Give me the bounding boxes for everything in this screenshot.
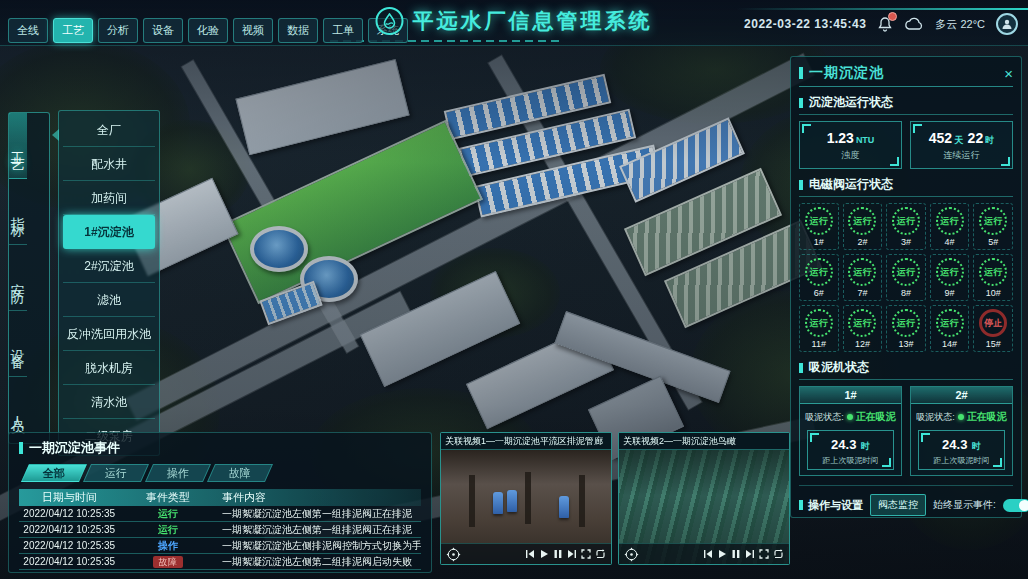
event-row[interactable]: 2022/04/12 10:25:35 故障 一期絮凝沉淀池左侧第二组排泥阀启动… — [19, 554, 421, 570]
loop-icon[interactable] — [773, 549, 784, 559]
valve-status-label: 运行 — [984, 266, 1002, 279]
valve-15[interactable]: 停止15# — [973, 305, 1013, 352]
nav-huayan[interactable]: 化验 — [188, 18, 228, 43]
valve-id: 2# — [857, 237, 867, 247]
section-run-status: 沉淀池运行状态 1.23NTU 浊度 452天 22时 连续运行 — [799, 94, 1013, 169]
show-events-label: 始终显示事件: — [933, 498, 996, 512]
video-2-title: 关联视频2—一期沉淀池鸟瞰 — [619, 433, 789, 450]
event-row[interactable]: 2022/04/12 10:25:35 运行 一期絮凝沉淀池左侧第一组排泥阀正在… — [19, 522, 421, 538]
valve-grid: 运行1# 运行2# 运行3# 运行4# 运行5# 运行6# 运行7# 运行8# … — [799, 203, 1013, 352]
valve-9[interactable]: 运行9# — [930, 254, 970, 301]
valve-14[interactable]: 运行14# — [930, 305, 970, 352]
status-dot-icon — [958, 414, 964, 420]
valve-run-indicator: 运行 — [936, 309, 964, 337]
col-type: 事件类型 — [120, 490, 216, 505]
datetime: 2022-03-22 13:45:43 — [744, 17, 866, 31]
nav-gongdan[interactable]: 工单 — [323, 18, 363, 43]
mud-time-box: 24.3 时 距上次吸泥时间 — [807, 430, 894, 470]
video-scene-detail — [579, 475, 585, 527]
col-datetime: 日期与时间 — [19, 490, 120, 505]
play-icon[interactable] — [539, 549, 549, 559]
turbidity-card: 1.23NTU 浊度 — [799, 121, 902, 169]
pause-icon[interactable] — [553, 549, 563, 559]
valve-status-label: 停止 — [984, 317, 1002, 330]
valve-run-indicator: 运行 — [979, 207, 1007, 235]
side-tab-gongyi[interactable]: 工艺 — [9, 113, 27, 179]
valve-id: 5# — [988, 237, 998, 247]
valve-id: 9# — [945, 288, 955, 298]
event-type: 运行 — [158, 508, 178, 519]
operations-title: 操作与设置 — [799, 498, 863, 513]
video-scene-detail — [493, 492, 503, 514]
detail-panel: 一期沉淀池 × 沉淀池运行状态 1.23NTU 浊度 452天 22时 连续运行 — [790, 56, 1022, 518]
valve-stop-indicator: 停止 — [979, 309, 1007, 337]
valve-status-label: 运行 — [810, 215, 828, 228]
tab-label: 操作 — [167, 466, 189, 481]
valve-run-indicator: 运行 — [848, 309, 876, 337]
valve-status-label: 运行 — [941, 266, 959, 279]
uptime-days-unit: 天 — [954, 135, 963, 145]
menu-item-jiayaojian[interactable]: 加药间 — [63, 181, 155, 215]
mud-machine-1-card: 1# 吸泥状态: 正在吸泥 24.3 时 距上次吸泥时间 — [799, 386, 902, 476]
uptime-label: 连续运行 — [944, 149, 980, 162]
valve-1[interactable]: 运行1# — [799, 203, 839, 250]
valve-id: 11# — [812, 339, 826, 349]
events-panel: 一期沉淀池事件 全部 运行 操作 故障 日期与时间 事件类型 事件内容 2022… — [8, 432, 432, 573]
side-tab-anfang[interactable]: 安防 — [9, 245, 27, 311]
menu-item-peishuijing[interactable]: 配水井 — [63, 147, 155, 181]
loop-icon[interactable] — [595, 549, 606, 559]
menu-item-fanchongxi[interactable]: 反冲洗回用水池 — [63, 317, 155, 351]
skip-forward-icon[interactable] — [745, 549, 755, 559]
events-tab-fault[interactable]: 故障 — [207, 464, 273, 482]
detail-panel-titlebar: 一期沉淀池 × — [799, 64, 1013, 87]
pause-icon[interactable] — [731, 549, 741, 559]
valve-id: 10# — [986, 288, 1001, 298]
section-title: 吸泥机状态 — [799, 359, 1013, 380]
valve-run-indicator: 运行 — [805, 207, 833, 235]
side-tab-shebei[interactable]: 设备 — [9, 311, 27, 377]
col-content: 事件内容 — [216, 490, 421, 505]
fullscreen-icon[interactable] — [759, 549, 769, 559]
show-events-toggle[interactable] — [1003, 499, 1028, 512]
valve-id: 1# — [814, 237, 824, 247]
video-scene-detail — [525, 472, 531, 524]
valve-run-indicator: 运行 — [892, 207, 920, 235]
valve-6[interactable]: 运行6# — [799, 254, 839, 301]
valve-status-label: 运行 — [853, 266, 871, 279]
ptz-pad-icon[interactable] — [624, 547, 639, 562]
nav-shuju[interactable]: 数据 — [278, 18, 318, 43]
skip-back-icon[interactable] — [525, 549, 535, 559]
valve-8[interactable]: 运行8# — [886, 254, 926, 301]
valve-4[interactable]: 运行4# — [930, 203, 970, 250]
event-content: 一期絮凝沉淀池左侧排泥阀控制方式切换为手动 — [216, 539, 421, 553]
valve-3[interactable]: 运行3# — [886, 203, 926, 250]
valve-11[interactable]: 运行11# — [799, 305, 839, 352]
uptime-hours: 22 — [968, 130, 984, 146]
status-dot-icon — [847, 414, 853, 420]
header-accent-line — [736, 8, 1028, 10]
mud-machine-id: 2# — [911, 387, 1012, 404]
play-icon[interactable] — [717, 549, 727, 559]
section-valves: 电磁阀运行状态 运行1# 运行2# 运行3# 运行4# 运行5# 运行6# 运行… — [799, 176, 1013, 352]
events-title: 一期沉淀池事件 — [19, 439, 421, 457]
valve-13[interactable]: 运行13# — [886, 305, 926, 352]
valve-5[interactable]: 运行5# — [973, 203, 1013, 250]
user-avatar[interactable] — [996, 13, 1018, 35]
detail-panel-title: 一期沉淀池 — [799, 64, 884, 82]
video-scene-detail — [507, 490, 517, 512]
valve-id: 6# — [814, 288, 824, 298]
section-operations: 操作与设置 阀态监控 始终显示事件: — [799, 485, 1013, 516]
event-content: 一期絮凝沉淀池左侧第一组排泥阀正在排泥 — [216, 523, 421, 537]
mud-time-unit: 时 — [972, 441, 981, 451]
nav-fenxi[interactable]: 分析 — [98, 18, 138, 43]
turbidity-unit: NTU — [856, 135, 875, 145]
valve-run-indicator: 运行 — [936, 207, 964, 235]
valve-run-indicator: 运行 — [892, 309, 920, 337]
menu-item-quanchang[interactable]: 全厂 — [63, 113, 155, 147]
event-row[interactable]: 2022/04/12 10:25:35 运行 一期絮凝沉淀池左侧第一组排泥阀正在… — [19, 506, 421, 522]
valve-run-indicator: 运行 — [892, 258, 920, 286]
valve-status-label: 运行 — [897, 317, 915, 330]
left-tab-bar: 工艺 指标 安防 设备 人员 — [8, 112, 50, 444]
valve-run-indicator: 运行 — [936, 258, 964, 286]
logo-icon — [376, 7, 404, 35]
valve-status-label: 运行 — [984, 215, 1002, 228]
valve-id: 14# — [942, 339, 957, 349]
valve-id: 12# — [855, 339, 870, 349]
menu-item-lvchi[interactable]: 滤池 — [63, 283, 155, 317]
menu-pointer-arrow — [52, 129, 59, 141]
weather-text: 多云 22°C — [935, 17, 985, 32]
menu-item-qingshuichi[interactable]: 清水池 — [63, 385, 155, 419]
valve-10[interactable]: 运行10# — [973, 254, 1013, 301]
tab-label: 运行 — [105, 466, 127, 481]
mud-machine-2-card: 2# 吸泥状态: 正在吸泥 24.3 时 距上次吸泥时间 — [910, 386, 1013, 476]
video-1-title: 关联视频1—一期沉淀池平流区排泥管廊 — [441, 433, 611, 450]
valve-run-indicator: 运行 — [805, 258, 833, 286]
valve-status-label: 运行 — [853, 215, 871, 228]
notification-badge — [888, 12, 897, 21]
event-type: 操作 — [158, 540, 178, 551]
valve-id: 8# — [901, 288, 911, 298]
valve-status-label: 运行 — [810, 317, 828, 330]
skip-forward-icon[interactable] — [567, 549, 577, 559]
event-type: 故障 — [153, 556, 183, 568]
brand: 平远水厂信息管理系统 — [376, 7, 653, 35]
valve-run-indicator: 运行 — [848, 207, 876, 235]
video-feed-2[interactable] — [619, 450, 789, 564]
event-time: 2022/04/12 10:25:35 — [19, 524, 120, 535]
valve-status-label: 运行 — [810, 266, 828, 279]
mud-time-box: 24.3 时 距上次吸泥时间 — [918, 430, 1005, 470]
mud-status-label: 吸泥状态: — [805, 411, 844, 424]
mud-status-value: 正在吸泥 — [856, 410, 896, 424]
nav-shebei[interactable]: 设备 — [143, 18, 183, 43]
uptime-card: 452天 22时 连续运行 — [910, 121, 1013, 169]
page-title: 平远水厂信息管理系统 — [413, 7, 653, 35]
video-feed-1[interactable] — [441, 450, 611, 564]
valve-monitor-button[interactable]: 阀态监控 — [870, 494, 926, 516]
mud-time-label: 距上次吸泥时间 — [810, 455, 891, 466]
header-right-cluster: 2022-03-22 13:45:43 多云 22°C — [744, 13, 1018, 35]
menu-item-tuoshuijifang[interactable]: 脱水机房 — [63, 351, 155, 385]
close-icon[interactable]: × — [1004, 66, 1013, 81]
valve-7[interactable]: 运行7# — [843, 254, 883, 301]
valve-status-label: 运行 — [941, 215, 959, 228]
valve-id: 13# — [898, 339, 913, 349]
fullscreen-icon[interactable] — [581, 549, 591, 559]
person-icon — [1001, 18, 1013, 30]
mud-time-unit: 时 — [861, 441, 870, 451]
events-tab-all[interactable]: 全部 — [21, 464, 87, 482]
event-content: 一期絮凝沉淀池左侧第一组排泥阀正在排泥 — [216, 507, 421, 521]
video-2-controls — [619, 543, 789, 564]
ptz-pad-icon[interactable] — [446, 547, 461, 562]
nav-shipin[interactable]: 视频 — [233, 18, 273, 43]
valve-status-label: 运行 — [897, 266, 915, 279]
video-panel-1: 关联视频1—一期沉淀池平流区排泥管廊 — [440, 432, 612, 565]
events-tab-run[interactable]: 运行 — [83, 464, 149, 482]
video-1-controls — [441, 543, 611, 564]
uptime-days: 452 — [929, 130, 952, 146]
section-title: 沉淀池运行状态 — [799, 94, 1013, 115]
video-scene-detail — [469, 475, 475, 527]
valve-id: 15# — [986, 339, 1001, 349]
valve-run-indicator: 运行 — [979, 258, 1007, 286]
side-tab-zhibiao[interactable]: 指标 — [9, 179, 27, 245]
event-content: 一期絮凝沉淀池左侧第二组排泥阀启动失败 — [216, 555, 421, 569]
valve-run-indicator: 运行 — [848, 258, 876, 286]
mud-time-label: 距上次吸泥时间 — [921, 455, 1002, 466]
event-time: 2022/04/12 10:25:35 — [19, 556, 120, 567]
section-title: 电磁阀运行状态 — [799, 176, 1013, 197]
skip-back-icon[interactable] — [703, 549, 713, 559]
mud-machine-id: 1# — [800, 387, 901, 404]
process-menu: 全厂 配水井 加药间 1#沉淀池 2#沉淀池 滤池 反冲洗回用水池 脱水机房 清… — [58, 110, 160, 456]
valve-run-indicator: 运行 — [805, 309, 833, 337]
valve-status-label: 运行 — [941, 317, 959, 330]
mud-time-value: 24.3 — [831, 437, 856, 452]
dashboard-root: 全线 工艺 分析 设备 化验 视频 数据 工单 系统 平远水厂信息管理系统 20… — [0, 0, 1028, 579]
event-row[interactable]: 2022/04/12 10:25:35 操作 一期絮凝沉淀池左侧排泥阀控制方式切… — [19, 538, 421, 554]
nav-quanxian[interactable]: 全线 — [8, 18, 48, 43]
video-panel-2: 关联视频2—一期沉淀池鸟瞰 — [618, 432, 790, 565]
cloud-icon — [904, 17, 924, 31]
tab-label: 全部 — [43, 466, 65, 481]
event-type: 运行 — [158, 524, 178, 535]
uptime-hours-unit: 时 — [985, 135, 994, 145]
event-time: 2022/04/12 10:25:35 — [19, 540, 120, 551]
events-table: 日期与时间 事件类型 事件内容 2022/04/12 10:25:35 运行 一… — [19, 489, 421, 570]
events-tabs: 全部 运行 操作 故障 — [25, 464, 421, 482]
main-nav: 全线 工艺 分析 设备 化验 视频 数据 工单 系统 — [8, 18, 408, 43]
menu-item-chendianchi-1[interactable]: 1#沉淀池 — [63, 215, 155, 249]
mud-status-value: 正在吸泥 — [967, 410, 1007, 424]
turbidity-label: 浊度 — [842, 149, 860, 162]
video-scene-detail — [559, 496, 569, 518]
valve-id: 3# — [901, 237, 911, 247]
events-table-header: 日期与时间 事件类型 事件内容 — [19, 489, 421, 506]
event-time: 2022/04/12 10:25:35 — [19, 508, 120, 519]
valve-status-label: 运行 — [897, 215, 915, 228]
top-header: 全线 工艺 分析 设备 化验 视频 数据 工单 系统 平远水厂信息管理系统 20… — [0, 0, 1028, 46]
mud-status-label: 吸泥状态: — [916, 411, 955, 424]
events-tab-operate[interactable]: 操作 — [145, 464, 211, 482]
valve-2[interactable]: 运行2# — [843, 203, 883, 250]
notifications-button[interactable] — [877, 16, 893, 32]
section-mud-machines: 吸泥机状态 1# 吸泥状态: 正在吸泥 24.3 时 距上次吸泥时间 2# — [799, 359, 1013, 476]
tab-label: 故障 — [229, 466, 251, 481]
valve-12[interactable]: 运行12# — [843, 305, 883, 352]
nav-gongyi[interactable]: 工艺 — [53, 18, 93, 43]
menu-item-chendianchi-2[interactable]: 2#沉淀池 — [63, 249, 155, 283]
valve-id: 7# — [857, 288, 867, 298]
mud-time-value: 24.3 — [942, 437, 967, 452]
valve-id: 4# — [945, 237, 955, 247]
turbidity-value: 1.23 — [827, 130, 854, 146]
valve-status-label: 运行 — [853, 317, 871, 330]
toggle-knob — [1019, 500, 1028, 511]
